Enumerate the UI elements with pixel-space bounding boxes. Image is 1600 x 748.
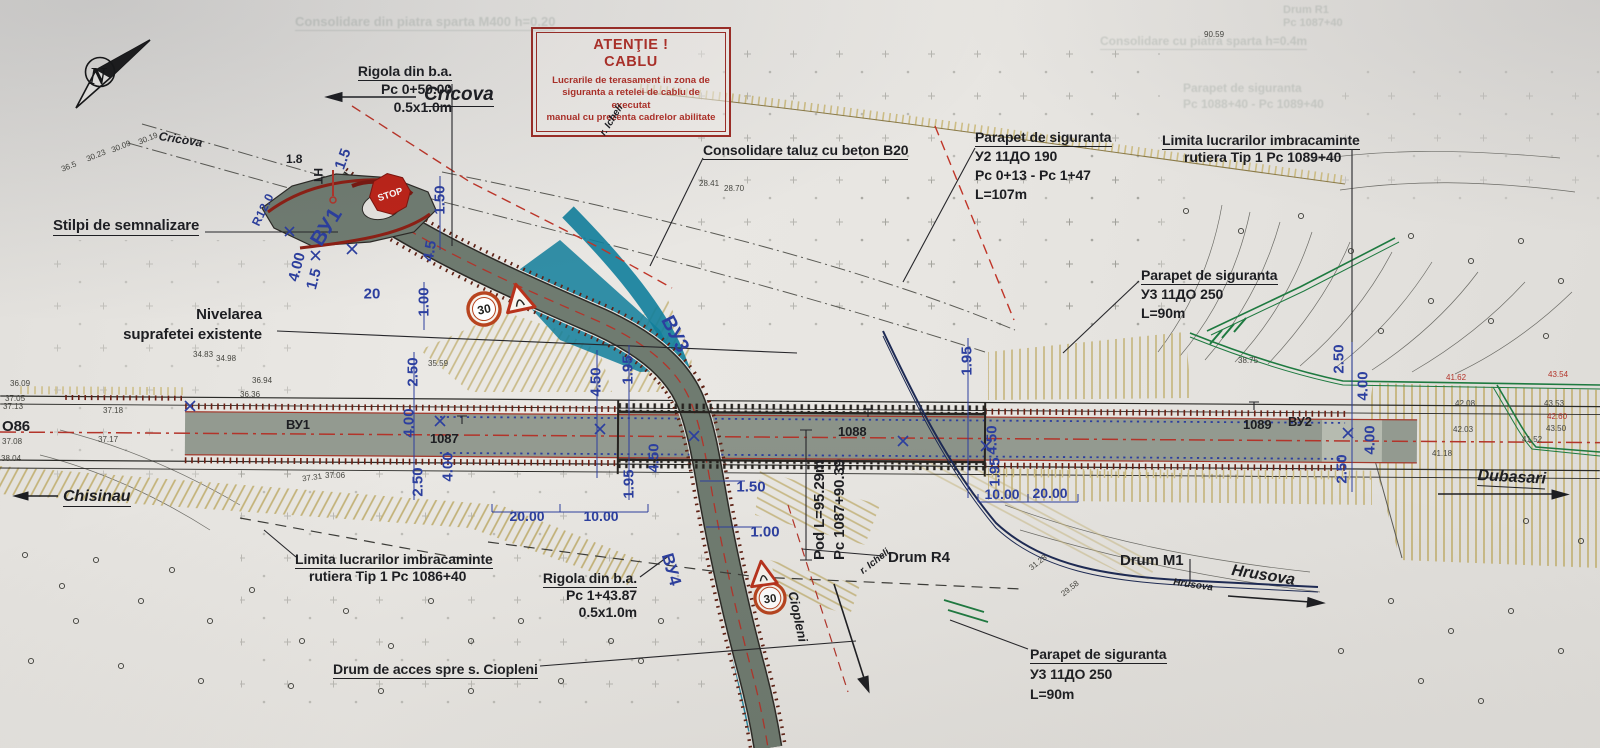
tree-symbol <box>1468 258 1473 263</box>
tree-symbol <box>1348 248 1353 253</box>
tree-symbol <box>22 552 27 557</box>
tree-symbol <box>1543 333 1548 338</box>
attention-body-line2: siguranta a retelei de cablu de executat <box>543 87 719 112</box>
compass-n-label: N <box>88 64 108 90</box>
attention-body-line3: manual cu prezenta cadrelor abilitate <box>543 112 719 124</box>
tree-symbol <box>207 618 212 623</box>
tree-symbol <box>28 658 33 663</box>
attention-body-line1: Lucrarile de terasament in zona de <box>543 75 719 87</box>
svg-text:30: 30 <box>763 593 777 607</box>
tree-symbol <box>1478 698 1483 703</box>
tree-symbol <box>1558 648 1563 653</box>
tree-symbol <box>1558 278 1563 283</box>
plan-drawing: STOP 30 30 N <box>0 0 1600 748</box>
tree-symbol <box>1238 228 1243 233</box>
tree-symbol <box>138 598 143 603</box>
tree-symbol <box>198 678 203 683</box>
attention-title-line2: CABLU <box>543 54 719 71</box>
north-compass-icon: N <box>76 40 150 108</box>
tree-symbol <box>1518 238 1523 243</box>
attention-note-inner: ATENŢIE ! CABLU Lucrarile de terasament … <box>536 32 726 132</box>
tree-symbol <box>73 618 78 623</box>
tree-symbol <box>1428 298 1433 303</box>
construction-plan-sheet: STOP 30 30 N ATENŢIE ! CABLU Lucrarile d… <box>0 0 1600 748</box>
tree-symbol <box>1418 678 1423 683</box>
tree-symbol <box>169 567 174 572</box>
attention-note: ATENŢIE ! CABLU Lucrarile de terasament … <box>531 27 731 137</box>
tree-symbol <box>1448 628 1453 633</box>
attention-title-line1: ATENŢIE ! <box>543 37 719 54</box>
tree-symbol <box>1408 233 1413 238</box>
tree-symbol <box>59 583 64 588</box>
tree-symbol <box>1298 213 1303 218</box>
tree-symbol <box>1388 598 1393 603</box>
terrain-dot-field <box>40 40 1600 710</box>
tree-symbol <box>118 663 123 668</box>
tree-symbol <box>1488 318 1493 323</box>
tree-symbol <box>1378 328 1383 333</box>
tree-symbol <box>1508 608 1513 613</box>
tree-symbol <box>93 557 98 562</box>
tree-symbol <box>1338 648 1343 653</box>
